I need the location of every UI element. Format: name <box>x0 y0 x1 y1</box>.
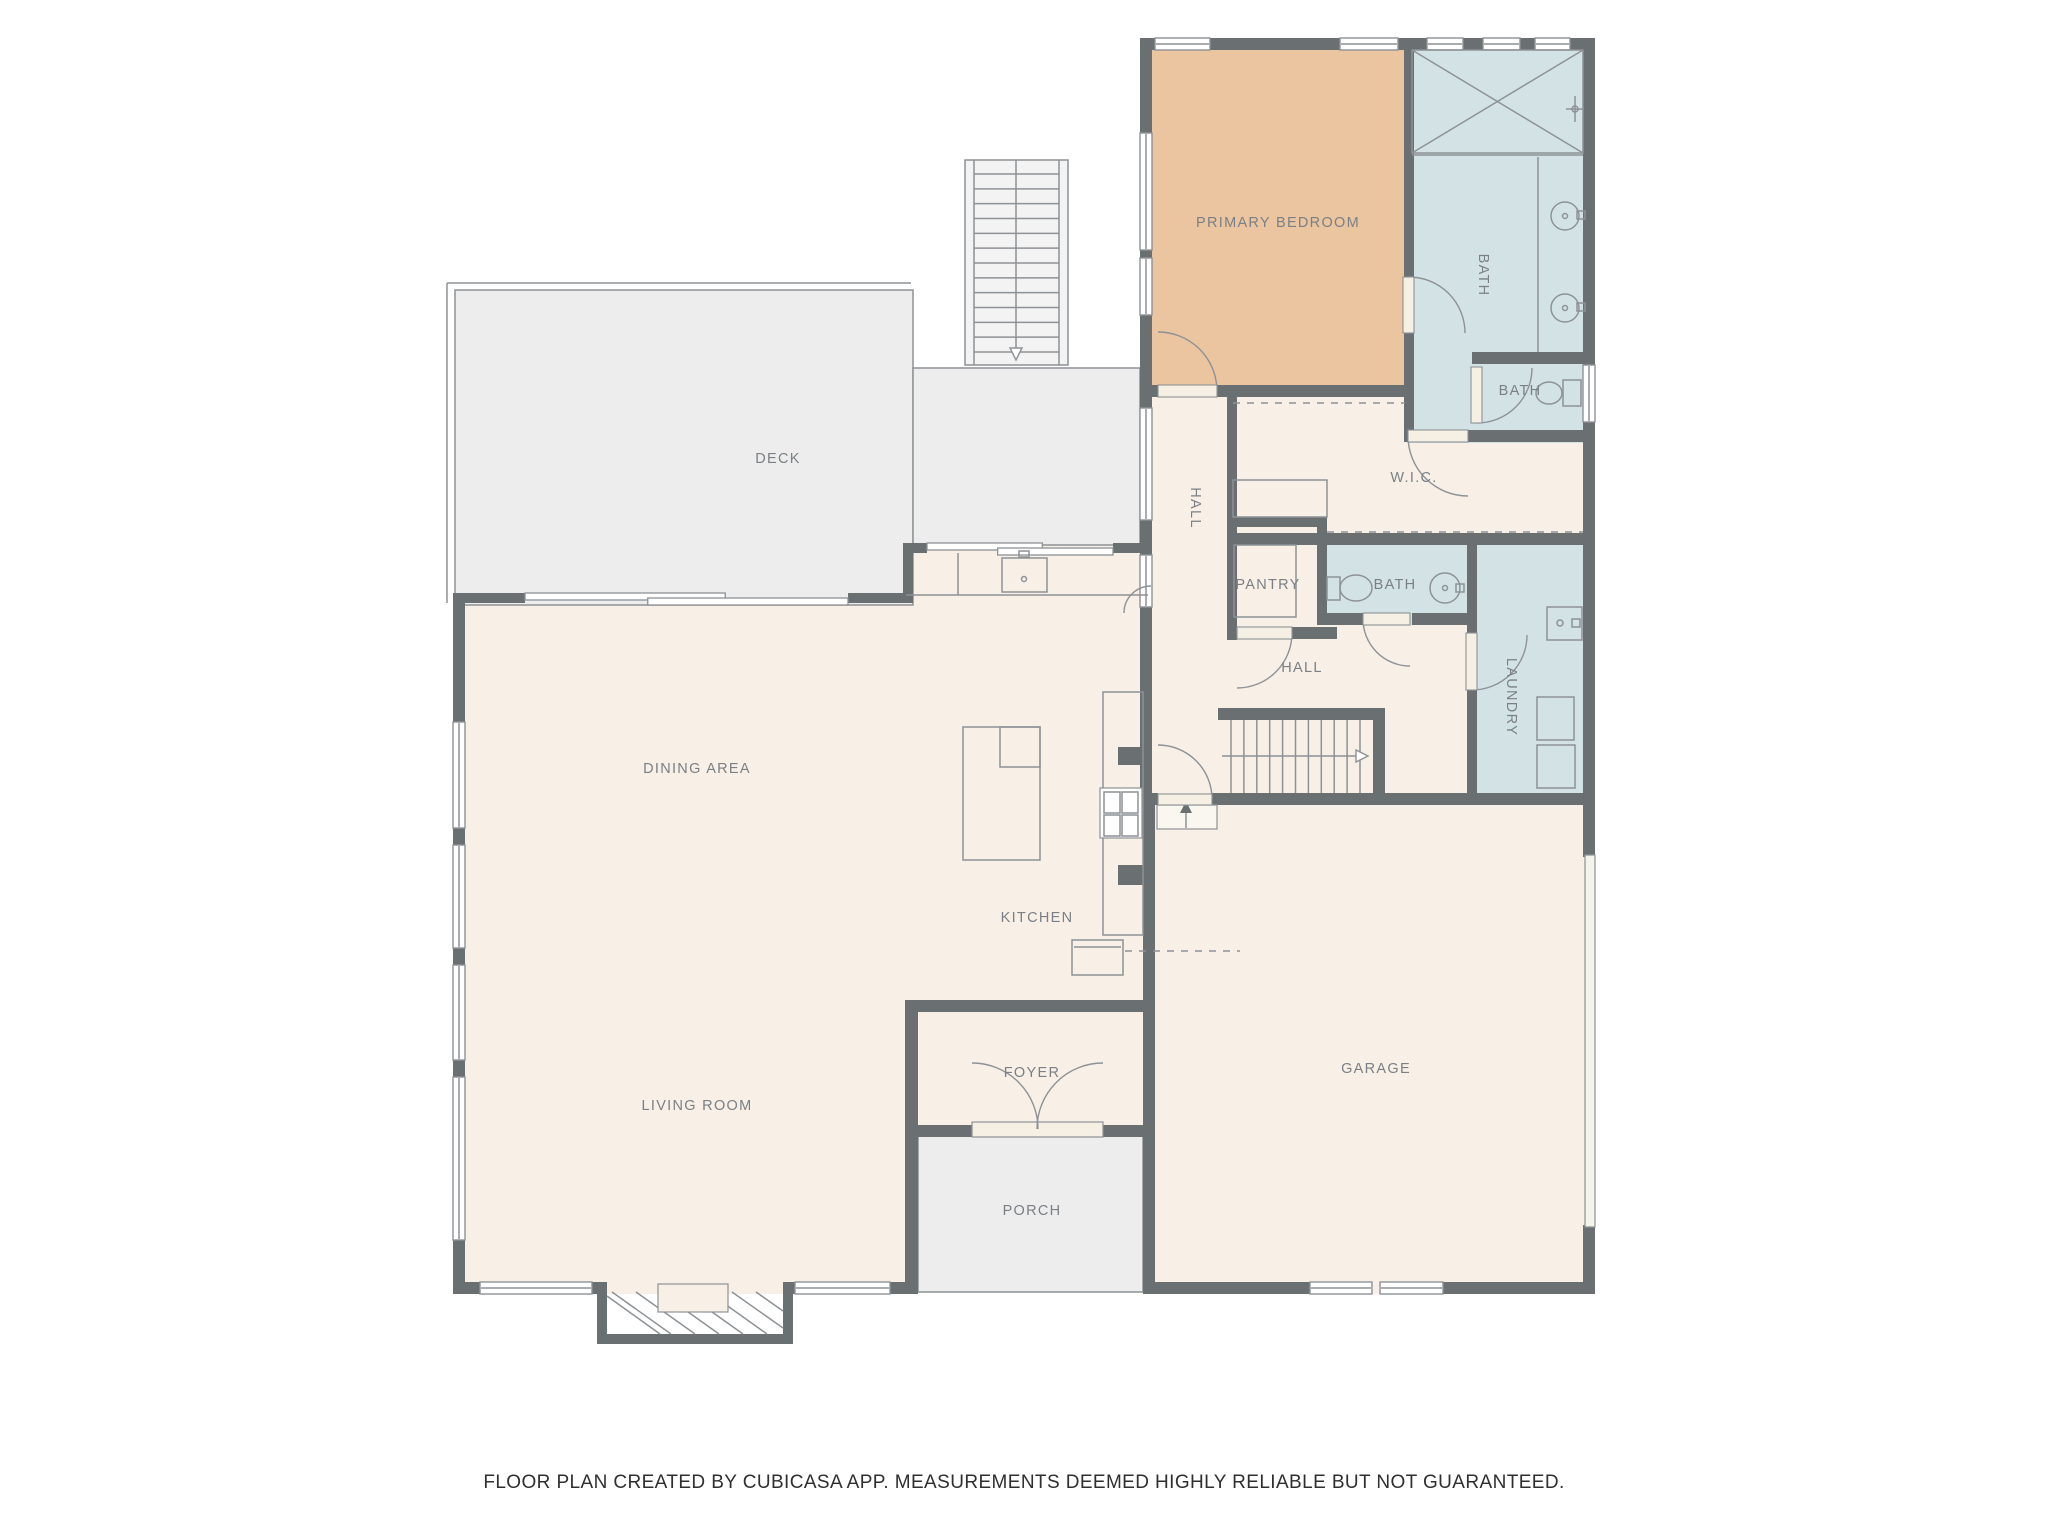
room-garage <box>1143 793 1595 1294</box>
sliding-door-dining-deck <box>648 598 848 605</box>
wall <box>1140 250 1152 258</box>
wall <box>453 828 465 845</box>
label-hall-lower: HALL <box>1281 660 1322 676</box>
wall <box>1583 50 1595 365</box>
wall <box>1373 708 1385 805</box>
wall <box>1140 397 1152 408</box>
room-deck-main <box>455 290 913 605</box>
wall <box>905 1000 1155 1012</box>
door-primary-bath-leaf <box>1403 277 1414 333</box>
wall <box>1237 533 1595 545</box>
wall <box>453 1282 480 1294</box>
wall <box>1583 422 1595 857</box>
label-primary-bedroom: PRIMARY BEDROOM <box>1196 215 1360 231</box>
wall <box>1404 333 1414 442</box>
wall <box>848 593 913 603</box>
wall <box>1143 805 1155 1294</box>
label-living-room: LIVING ROOM <box>642 1098 753 1114</box>
wall <box>1443 1282 1595 1294</box>
wall <box>1103 1125 1155 1137</box>
wall <box>1317 613 1363 625</box>
door-garage-hall-leaf <box>1158 794 1212 805</box>
floorplan-canvas: DECKDINING AREAKITCHENLIVING ROOMFOYERPO… <box>0 0 2048 1536</box>
wall <box>1467 690 1477 793</box>
wall <box>597 1334 793 1344</box>
wall <box>1472 352 1595 364</box>
wall <box>1227 390 1237 640</box>
room-kitchen <box>903 543 1155 1012</box>
wall <box>1227 517 1327 527</box>
footer-disclaimer: FLOOR PLAN CREATED BY CUBICASA APP. MEAS… <box>0 1472 2048 1494</box>
door-primary-bedroom-leaf <box>1158 385 1217 397</box>
wall <box>905 1125 972 1137</box>
wall <box>455 593 525 603</box>
wall <box>1212 793 1595 805</box>
wall <box>1155 1282 1310 1294</box>
label-pantry: PANTRY <box>1235 577 1300 593</box>
wall <box>1118 865 1143 885</box>
wall <box>1140 315 1152 397</box>
label-kitchen: KITCHEN <box>1001 910 1074 926</box>
label-bath-small: BATH <box>1499 383 1542 399</box>
wall <box>1412 613 1467 625</box>
wall <box>1292 627 1337 639</box>
room-living-dining <box>453 593 918 1294</box>
wall <box>1467 545 1477 633</box>
wall <box>905 1012 918 1294</box>
door-wic-leaf <box>1408 430 1468 442</box>
label-deck: DECK <box>755 451 801 467</box>
label-dining-area: DINING AREA <box>643 761 751 777</box>
door-hall-bath-leaf <box>1363 613 1410 625</box>
wall <box>453 1060 465 1077</box>
door-pantry-leaf <box>1237 627 1292 639</box>
firebox <box>658 1284 728 1312</box>
wall <box>1217 385 1407 397</box>
wall <box>1218 708 1373 720</box>
wall <box>1118 747 1143 765</box>
door-laundry-leaf <box>1466 633 1477 690</box>
wall <box>1227 627 1237 639</box>
wall <box>1140 385 1158 397</box>
label-laundry: LAUNDRY <box>1503 658 1519 736</box>
door-bath-small-leaf <box>1471 367 1482 423</box>
label-porch: PORCH <box>1003 1203 1062 1219</box>
label-hall-upper: HALL <box>1187 487 1203 528</box>
room-laundry <box>1467 543 1595 805</box>
label-bath-hall: BATH <box>1374 577 1417 593</box>
label-foyer: FOYER <box>1004 1065 1060 1081</box>
garage-door <box>1585 855 1595 1227</box>
wall <box>1468 430 1595 442</box>
wall <box>453 948 465 965</box>
wall <box>1113 543 1152 553</box>
label-bath-primary: BATH <box>1475 254 1491 297</box>
label-wic: W.I.C. <box>1390 470 1437 486</box>
label-garage: GARAGE <box>1341 1061 1411 1077</box>
room-deck-side <box>913 368 1140 545</box>
sliding-door-kitchen-deck <box>998 548 1113 555</box>
wall <box>453 593 465 722</box>
wall <box>1140 50 1152 133</box>
